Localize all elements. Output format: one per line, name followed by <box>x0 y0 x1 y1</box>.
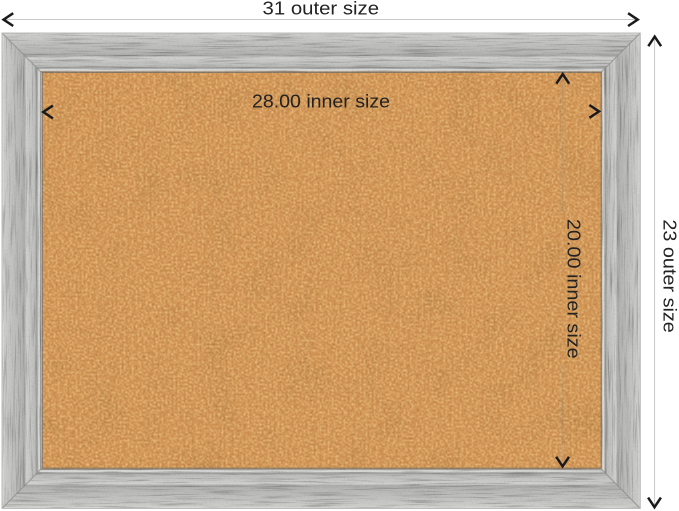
svg-text:20.00 inner size: 20.00 inner size <box>564 219 585 359</box>
svg-text:31 outer size: 31 outer size <box>263 0 380 19</box>
svg-text:28.00 inner size: 28.00 inner size <box>252 91 390 112</box>
svg-text:23 outer size: 23 outer size <box>659 219 679 333</box>
